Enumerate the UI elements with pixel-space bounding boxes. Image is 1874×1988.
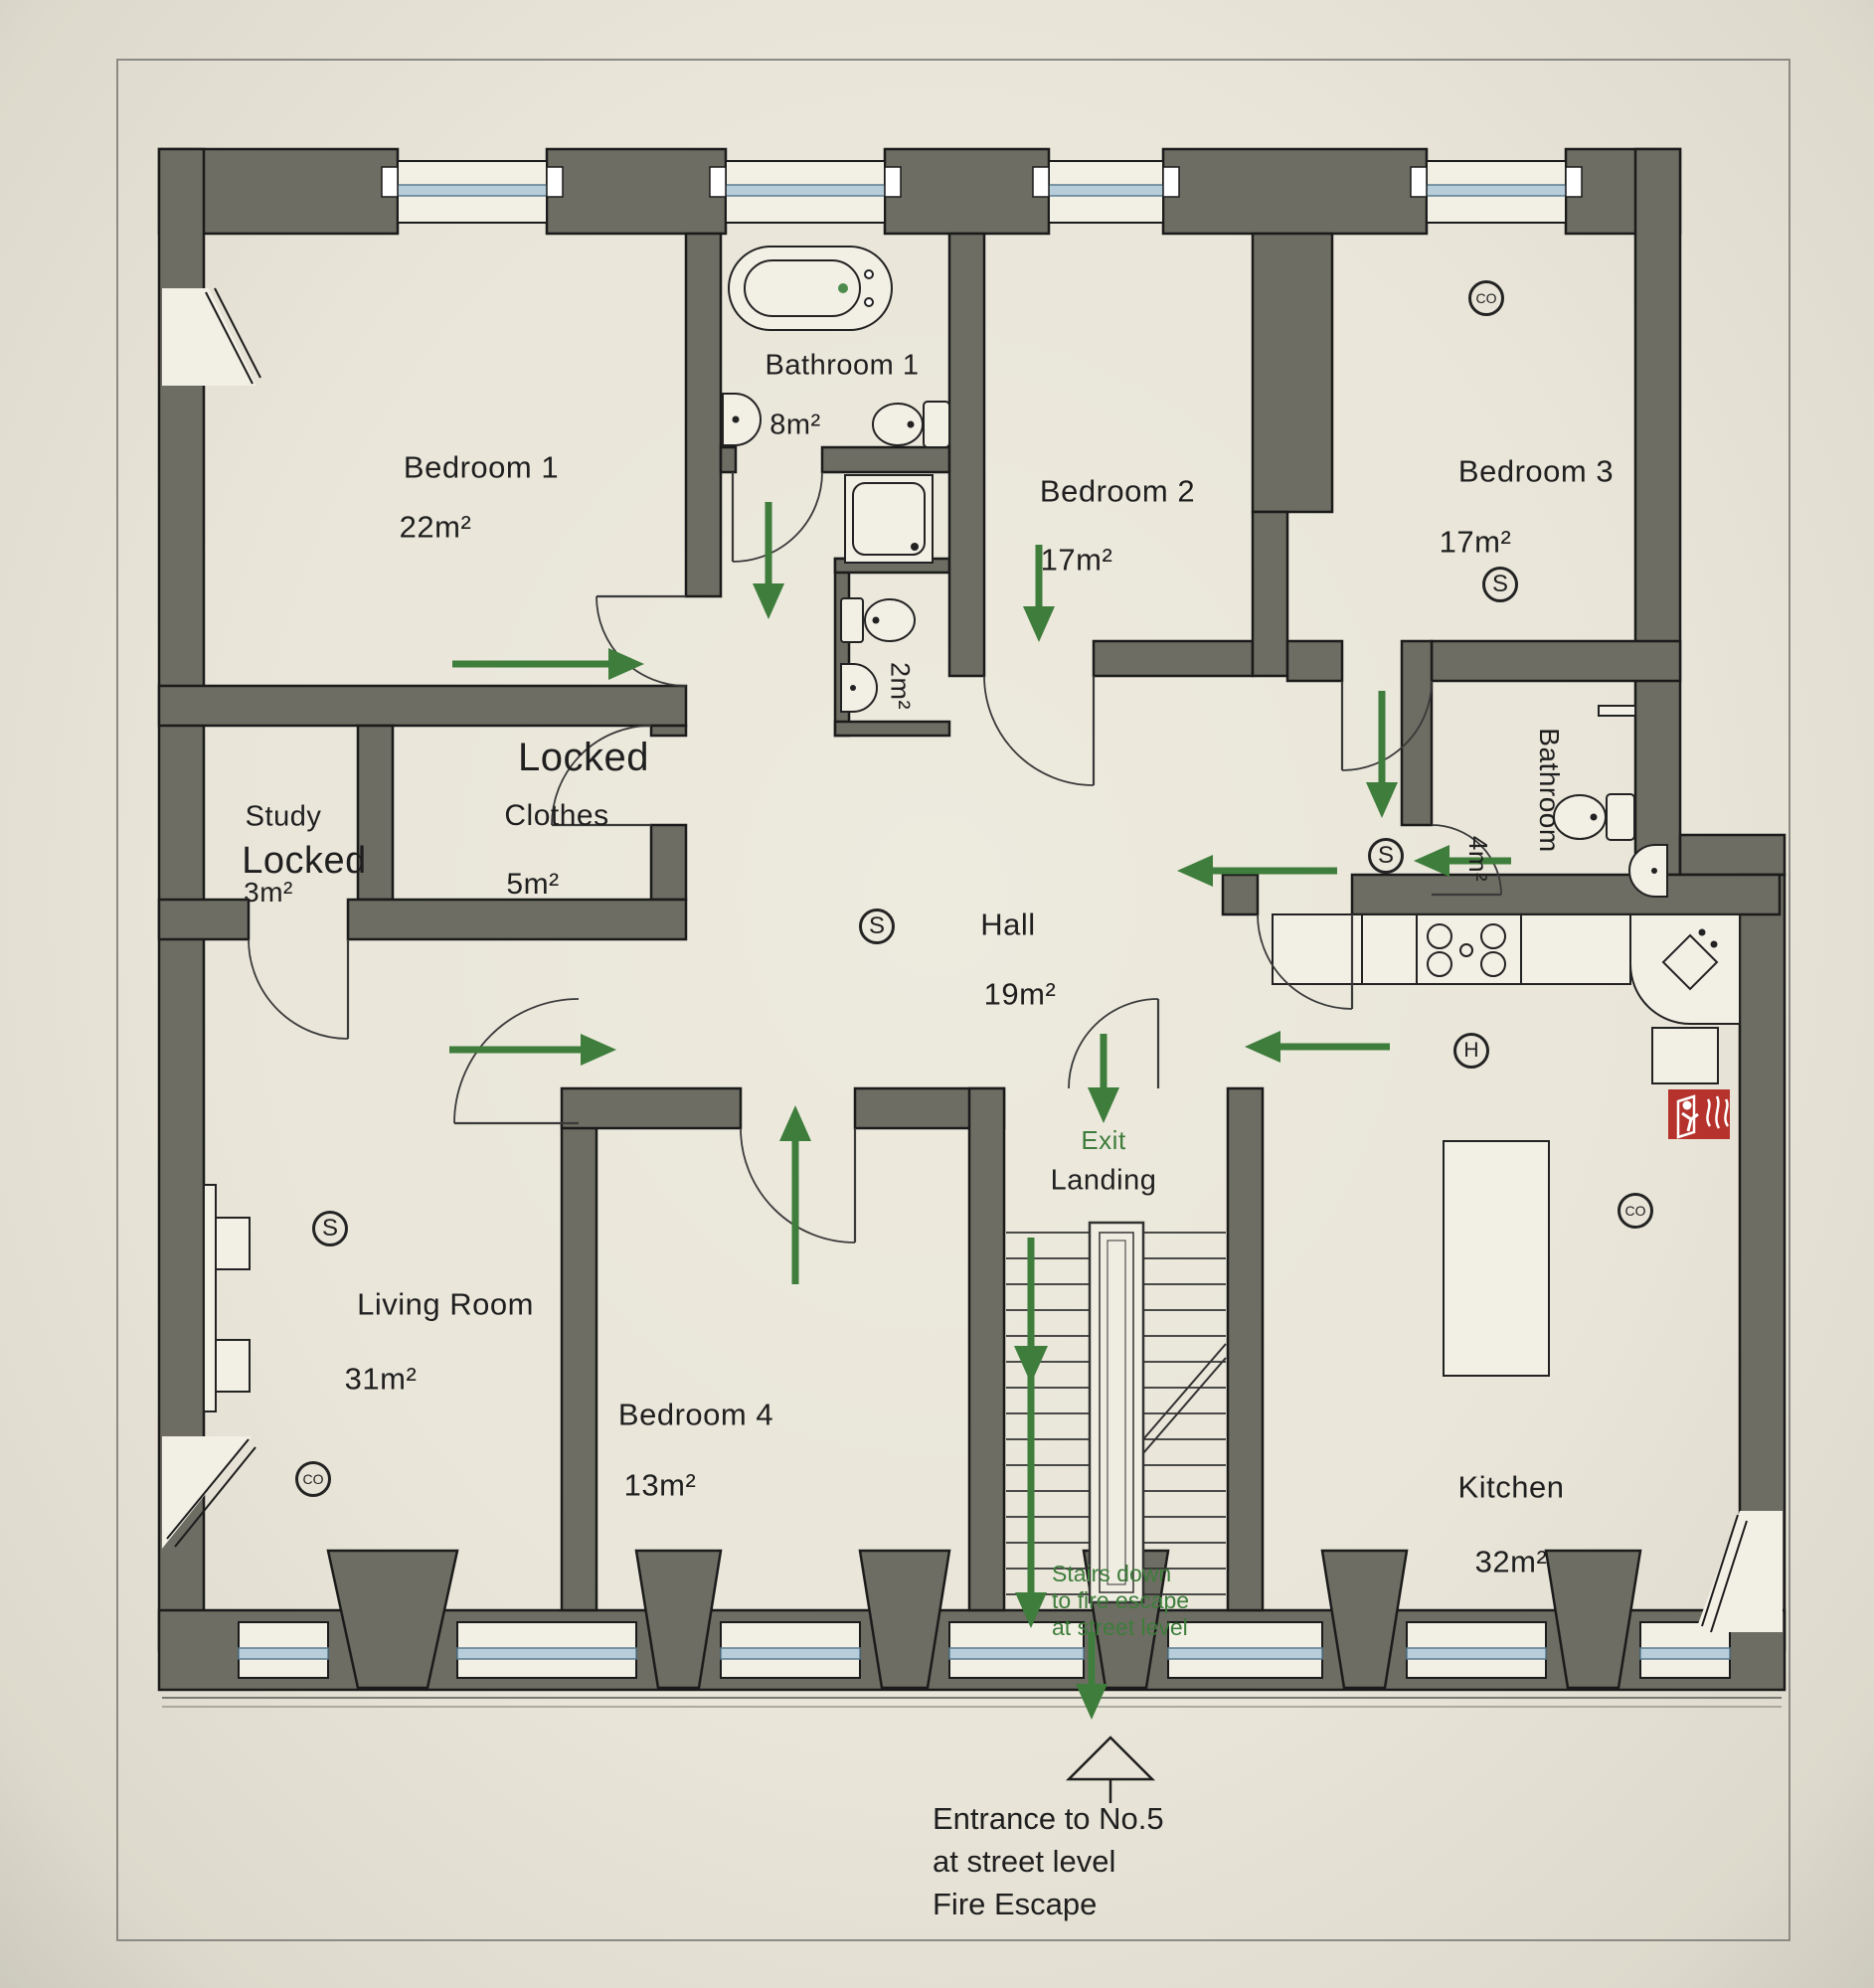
co-detector-icon: CO: [1468, 280, 1504, 316]
heat-detector-letter: H: [1463, 1039, 1478, 1063]
label-bedroom4-name: Bedroom 4: [618, 1400, 773, 1430]
label-bedroom3-area: 17m²: [1440, 527, 1512, 558]
appliance: [1652, 1028, 1718, 1083]
heat-detector-icon: H: [1453, 1033, 1489, 1069]
label-study-status: Locked: [242, 842, 367, 880]
sink: [841, 664, 877, 712]
label-clothes-area: 5m²: [506, 870, 559, 900]
label-bedroom2-name: Bedroom 2: [1040, 476, 1195, 507]
entrance-marker: [1069, 1738, 1152, 1803]
label-living-room-area: 31m²: [345, 1364, 418, 1395]
kitchen-fixtures: [1273, 914, 1740, 1376]
floor-plan-photo: Bedroom 1 22m² Bathroom 1 8m² 2m² Bedroo…: [0, 0, 1874, 1988]
floor-plan-drawing: [0, 0, 1874, 1988]
label-bedroom1-area: 22m²: [400, 512, 472, 543]
entrance-note: Entrance to No.5 at street level Fire Es…: [933, 1797, 1164, 1925]
stairs-note-line2: to fire escape: [1052, 1587, 1189, 1614]
label-bedroom3-name: Bedroom 3: [1458, 456, 1614, 487]
label-clothes-name: Clothes: [504, 801, 608, 831]
co-detector-icon: CO: [295, 1461, 331, 1497]
label-living-room-name: Living Room: [357, 1289, 534, 1320]
bathroom1-fixtures: [723, 247, 949, 563]
entrance-note-line1: Entrance to No.5: [933, 1797, 1164, 1840]
label-bedroom2-area: 17m²: [1041, 545, 1113, 576]
stairs-note-line1: Stairs down: [1052, 1561, 1189, 1587]
angled-window-top-left: [162, 288, 260, 386]
toilet-bowl: [873, 404, 923, 445]
co-detector-letter: CO: [1625, 1203, 1646, 1219]
toilet-cistern: [924, 402, 949, 447]
entrance-note-line2: at street level: [933, 1840, 1164, 1883]
label-hall-name: Hall: [980, 910, 1035, 940]
living-room-bay: [204, 1185, 250, 1411]
label-bathroom1-name: Bathroom 1: [766, 352, 920, 381]
co-detector-icon: CO: [1618, 1193, 1653, 1229]
angled-window-bottom-right: [1695, 1511, 1783, 1632]
label-clothes-status: Locked: [518, 738, 649, 777]
shelf: [1599, 706, 1635, 716]
label-kitchen-area: 32m²: [1475, 1547, 1548, 1577]
entrance-note-line3: Fire Escape: [933, 1883, 1164, 1925]
co-detector-letter: CO: [303, 1471, 324, 1487]
label-hall-area: 19m²: [984, 979, 1057, 1010]
smoke-detector-icon: S: [1368, 838, 1404, 874]
toilet-cistern: [841, 598, 863, 642]
label-study-name: Study: [246, 803, 322, 832]
smoke-detector-icon: S: [1482, 567, 1518, 602]
fire-escape-icon: [1668, 1089, 1730, 1139]
smoke-detector-icon: S: [312, 1211, 348, 1246]
toilet-cistern: [1607, 794, 1634, 840]
smoke-detector-icon: S: [859, 909, 895, 944]
smoke-detector-letter: S: [1492, 571, 1508, 598]
label-exit: Exit: [1081, 1127, 1125, 1153]
smoke-detector-letter: S: [322, 1215, 338, 1242]
label-bedroom4-area: 13m²: [624, 1470, 697, 1501]
co-detector-letter: CO: [1476, 290, 1497, 306]
kitchen-counter: [1273, 914, 1630, 984]
kitchen-island: [1444, 1141, 1549, 1376]
sink: [723, 394, 761, 445]
stairs-note-line3: at street level: [1052, 1614, 1189, 1641]
label-study-area: 3m²: [244, 879, 293, 907]
label-bedroom1-name: Bedroom 1: [404, 452, 559, 483]
label-bathroom1-area: 8m²: [769, 412, 820, 440]
label-kitchen-name: Kitchen: [1458, 1472, 1565, 1503]
label-bathroom2-name: Bathroom: [1535, 728, 1563, 852]
smoke-detector-letter: S: [869, 912, 885, 940]
staircase: [1006, 1223, 1226, 1602]
stairs-note: Stairs down to fire escape at street lev…: [1052, 1561, 1189, 1641]
label-bathroom2-area: 4m²: [1465, 836, 1491, 882]
smoke-detector-letter: S: [1378, 842, 1394, 870]
label-wc-area: 2m²: [887, 662, 914, 710]
label-landing: Landing: [1051, 1167, 1157, 1196]
